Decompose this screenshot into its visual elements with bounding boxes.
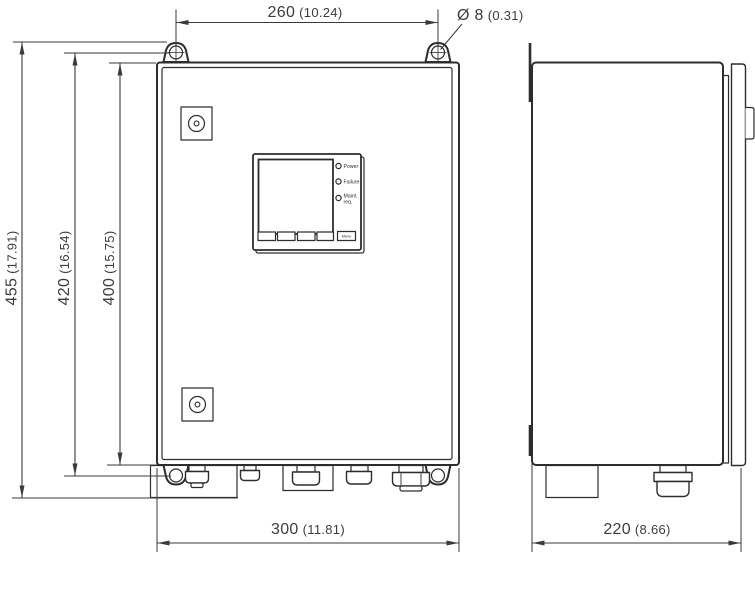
- dim-d8-label: Ø 8(0.31): [457, 7, 523, 24]
- door-lock-bottom: [182, 388, 213, 421]
- side-bottom-box: [546, 466, 598, 498]
- dim-455-label: 455(17.91): [4, 231, 21, 306]
- panel-key-3: [298, 232, 316, 241]
- cable-gland-3: [293, 466, 320, 486]
- dim-420-label: 420(16.54): [56, 231, 73, 306]
- side-view: [530, 43, 754, 498]
- dim-400-label: 400(15.75): [101, 231, 118, 306]
- panel-key-2: [278, 232, 296, 241]
- mounting-hole-bottom-left: [170, 469, 183, 482]
- wall-bracket-tab: [746, 108, 755, 140]
- menu-button-label: Menu: [342, 235, 352, 239]
- technical-dimension-drawing: Power Failure Maint.req. Menu: [0, 0, 755, 600]
- cable-gland-5: [393, 466, 430, 492]
- front-view: Power Failure Maint.req. Menu: [151, 43, 460, 498]
- panel-key-4: [317, 232, 334, 241]
- display-screen: [259, 160, 334, 235]
- led-power-label: Power: [344, 164, 359, 170]
- led-failure-indicator: [336, 179, 341, 184]
- door-lock-top: [181, 107, 212, 140]
- dim-300-label: 300(11.81): [271, 521, 345, 538]
- control-panel: Power Failure Maint.req. Menu: [253, 154, 364, 253]
- drawing-canvas: Power Failure Maint.req. Menu: [0, 0, 755, 600]
- led-power-indicator: [336, 163, 341, 168]
- mounting-hole-bottom-right: [432, 469, 445, 482]
- side-cable-gland: [654, 466, 692, 497]
- cable-gland-4: [347, 466, 372, 485]
- side-back-plate: [732, 64, 746, 466]
- led-failure-label: Failure: [344, 180, 360, 186]
- dim-220-label: 220(8.66): [603, 521, 670, 538]
- dim-height-400: 400(15.75): [101, 63, 157, 465]
- led-maint-indicator: [336, 195, 341, 200]
- cable-gland-2: [241, 466, 260, 481]
- dim-hole-diameter: Ø 8(0.31): [441, 7, 524, 50]
- dim-260-label: 260(10.24): [268, 4, 343, 21]
- side-door: [532, 63, 723, 466]
- panel-key-1: [258, 232, 276, 241]
- dim-width-260: 260(10.24): [176, 4, 438, 47]
